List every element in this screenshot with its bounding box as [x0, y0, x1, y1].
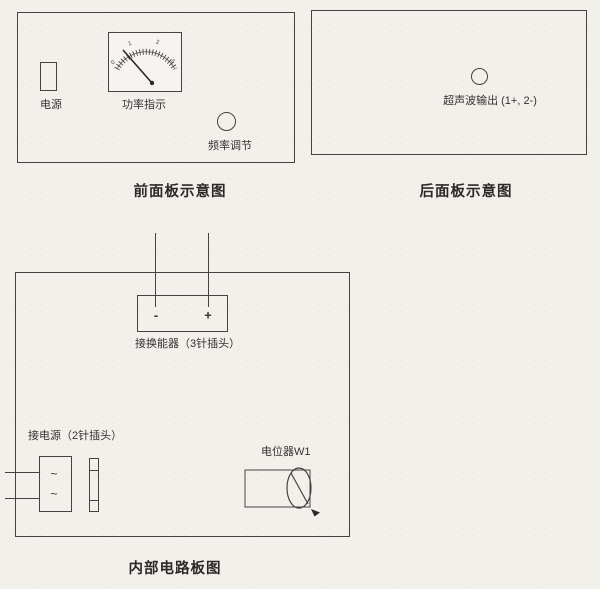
power-switch-label: 电源 — [40, 99, 62, 112]
power-meter-label: 功率指示 — [122, 99, 166, 112]
back-panel-caption: 后面板示意图 — [420, 180, 513, 201]
transducer-connector-label: 接换能器（3针插头） — [135, 338, 240, 351]
power-lead-bottom — [5, 498, 39, 499]
ac-mark-top: ~ — [50, 467, 57, 481]
fuse-divider-top — [89, 470, 99, 471]
transducer-minus-sign: - — [154, 308, 158, 323]
back-panel-outline — [311, 10, 587, 155]
transducer-connector — [137, 295, 228, 332]
meter-scale-3: 3 — [169, 58, 176, 65]
fuse-holder — [89, 458, 99, 512]
power-lead-top — [5, 472, 39, 473]
power-connector-label: 接电源（2针插头） — [28, 430, 122, 443]
potentiometer-slot — [291, 473, 308, 504]
potentiometer-label: 电位器W1 — [261, 446, 311, 459]
frequency-knob-label: 频率调节 — [208, 140, 252, 153]
frequency-knob — [217, 112, 236, 131]
power-connector — [39, 456, 72, 512]
front-panel-caption: 前面板示意图 — [134, 180, 227, 201]
ultrasonic-output-connector — [471, 68, 488, 85]
fuse-divider-bottom — [89, 500, 99, 501]
transducer-plus-sign: + — [204, 308, 212, 323]
pointer-arrow-icon — [311, 509, 320, 517]
meter-scale-2: 2 — [155, 40, 160, 47]
scanned-diagram-page: 电源 0 1 2 3 功率指示 频率调节 前面板示意图 超声波输出 (1+, 2… — [0, 0, 600, 589]
ultrasonic-output-label: 超声波输出 (1+, 2-) — [443, 95, 537, 108]
meter-needle-pivot — [150, 81, 154, 85]
meter-scale-1: 1 — [128, 41, 133, 48]
potentiometer — [243, 464, 325, 522]
ac-mark-bottom: ~ — [50, 487, 57, 501]
power-meter: 0 1 2 3 — [108, 32, 182, 92]
power-switch — [40, 62, 57, 91]
circuit-board-caption: 内部电路板图 — [129, 557, 222, 578]
meter-scale-0: 0 — [110, 59, 117, 66]
meter-tick-arc — [117, 52, 175, 69]
potentiometer-body — [245, 470, 310, 507]
